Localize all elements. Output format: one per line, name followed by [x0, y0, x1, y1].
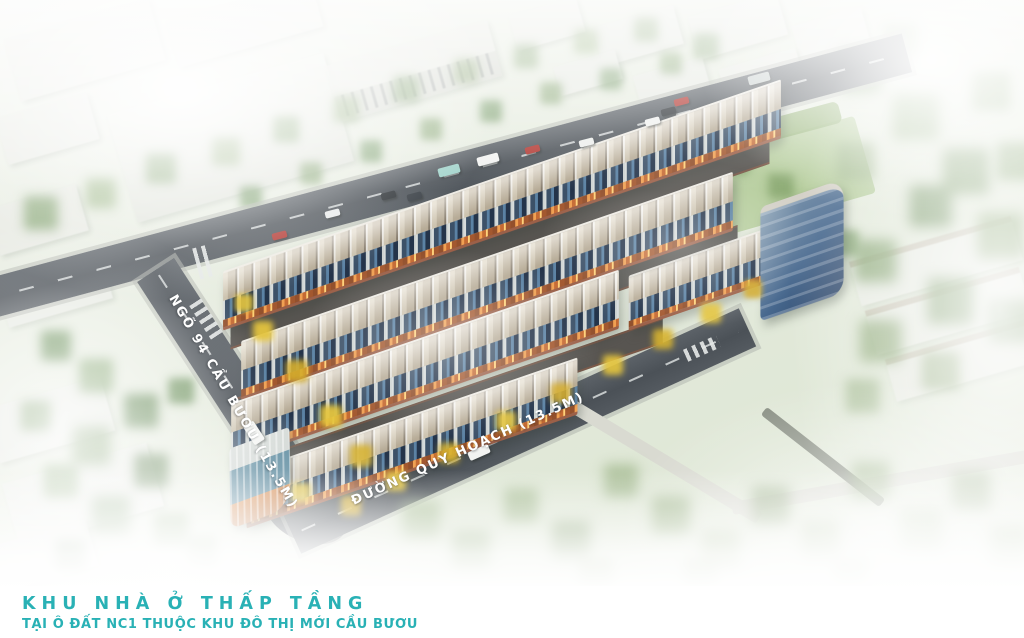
project-title: KHU NHÀ Ở THẤP TẦNG	[22, 594, 368, 614]
project-subtitle: TẠI Ô ĐẤT NC1 THUỘC KHU ĐÔ THỊ MỚI CẦU B…	[22, 617, 418, 632]
tree-cluster-bottom	[0, 0, 2, 2]
caption: KHU NHÀ Ở THẤP TẦNG TẠI Ô ĐẤT NC1 THUỘC …	[0, 586, 1024, 638]
slide: NGÕ 94 CẦU BƯƠU (13.5M) ĐƯỜNG QUY HOẠCH …	[0, 0, 1024, 638]
